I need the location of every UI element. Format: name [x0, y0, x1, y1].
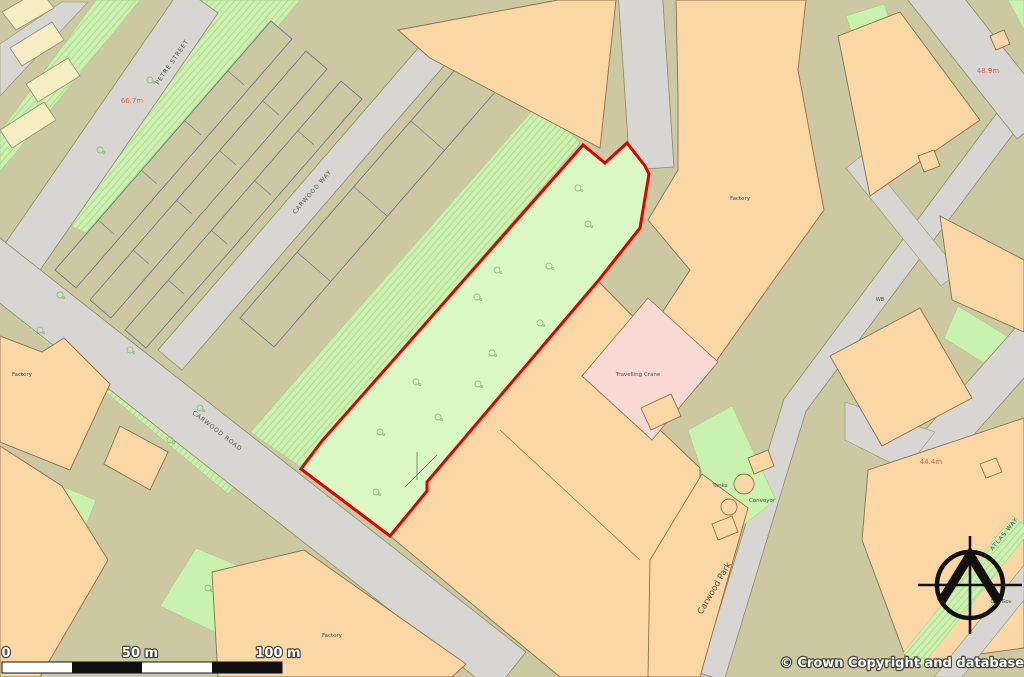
tank-circle	[734, 474, 754, 494]
scale-label-end: 100 m	[255, 646, 300, 661]
scale-bar-segment	[72, 662, 142, 673]
place-label: Tanks	[711, 483, 727, 489]
place-label: Factory	[322, 633, 343, 639]
tank-circle	[721, 499, 737, 515]
scale-label-middle: 50 m	[122, 646, 158, 661]
place-label: WB	[876, 297, 885, 303]
copyright-notice: © Crown Copyright and database rights 20…	[780, 656, 1024, 671]
scale-bar-segment	[212, 662, 282, 673]
spot-height: 66.7m	[121, 97, 144, 105]
place-label: Conveyor	[749, 498, 776, 504]
place-label: Factory	[730, 196, 751, 202]
place-label: Travelling Crane	[615, 372, 661, 378]
map-canvas: PETRE STREET CARWOOD WAY CARWOOD ROAD AT…	[0, 0, 1024, 677]
scale-label-start: 0	[1, 646, 10, 661]
place-label: Factory	[12, 372, 33, 378]
spot-height: 48.9m	[977, 67, 1000, 75]
spot-height: 44.4m	[920, 458, 943, 466]
